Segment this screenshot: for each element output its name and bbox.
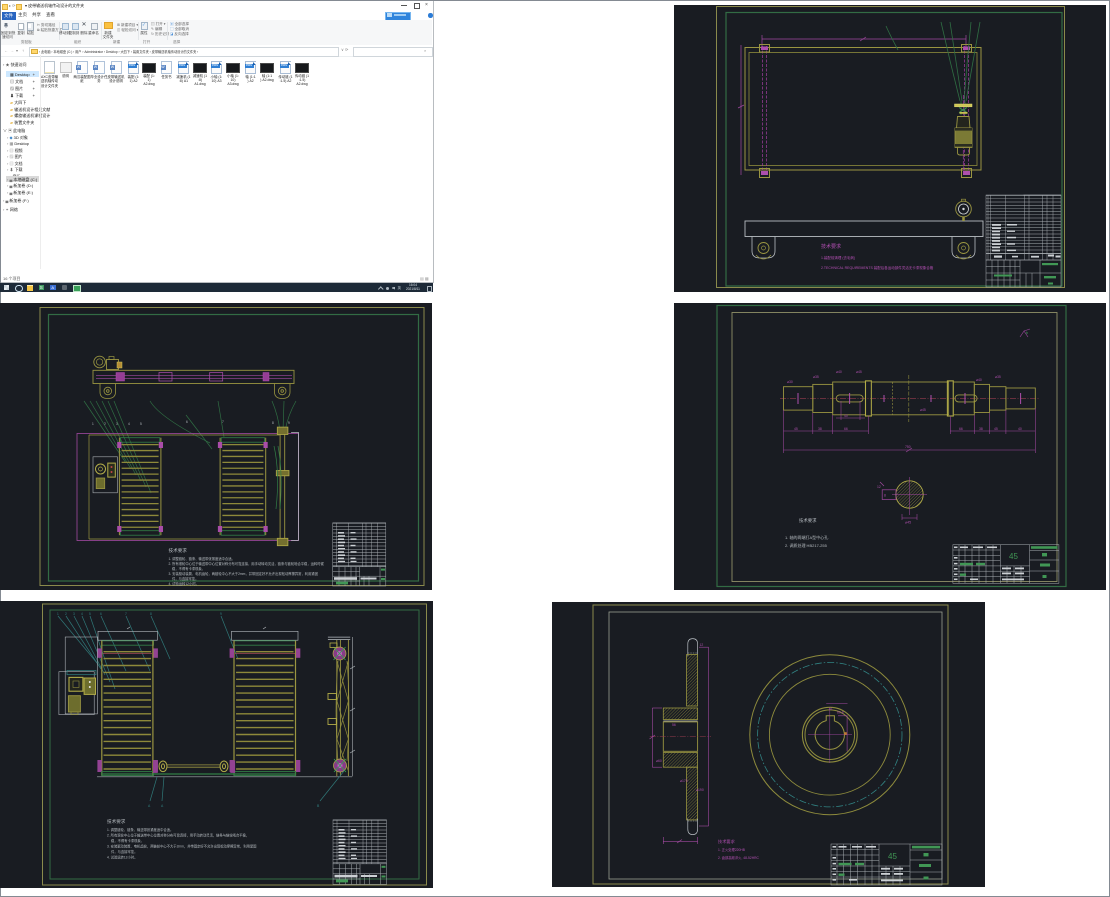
- svg-text:9: 9: [288, 421, 290, 425]
- svg-text:40: 40: [1018, 427, 1022, 431]
- svg-text:稳，不得有卡滞现象。: 稳，不得有卡滞现象。: [172, 566, 205, 571]
- svg-text:技术要求: 技术要求: [799, 517, 817, 524]
- svg-text:⌀30: ⌀30: [787, 380, 793, 384]
- svg-text:8: 8: [150, 612, 152, 616]
- svg-text:12: 12: [700, 643, 704, 647]
- svg-text:12: 12: [877, 485, 881, 489]
- svg-text:4: 4: [128, 422, 130, 426]
- svg-text:技术要求: 技术要求: [718, 838, 736, 845]
- svg-text:5: 5: [89, 612, 91, 616]
- svg-text:⌀60: ⌀60: [656, 759, 662, 763]
- svg-text:稳，不得有卡滞现象。: 稳，不得有卡滞现象。: [111, 838, 144, 843]
- svg-text:⌀170: ⌀170: [680, 779, 688, 783]
- svg-text:38: 38: [979, 427, 983, 431]
- svg-text:件，与连接牢靠。: 件，与连接牢靠。: [172, 576, 198, 581]
- svg-text:3. 安装驱动装置、电机齿轮，两链轮中心不大于2mm，并带固: 3. 安装驱动装置、电机齿轮，两链轮中心不大于2mm，并带固定好不允许出现松动摩…: [169, 571, 318, 576]
- svg-text:⌀45: ⌀45: [856, 370, 862, 374]
- svg-text:3. 安装驱动装置、电机齿轮，两链轮中心不大于2mm，并带固: 3. 安装驱动装置、电机齿轮，两链轮中心不大于2mm，并带固定好不允许出现松动摩…: [107, 844, 256, 849]
- svg-text:⌀35: ⌀35: [995, 375, 1001, 379]
- svg-text:技术要求: 技术要求: [107, 818, 126, 825]
- svg-text:5: 5: [140, 422, 142, 426]
- svg-text:B: B: [317, 804, 320, 808]
- svg-text:4. 试验运转12小时。: 4. 试验运转12小时。: [169, 581, 199, 586]
- svg-text:1. 调整链轮、链条、输送带张紧度适中合适。: 1. 调整链轮、链条、输送带张紧度适中合适。: [169, 556, 235, 561]
- svg-text:技术要求: 技术要求: [821, 243, 841, 250]
- svg-text:2: 2: [65, 612, 67, 616]
- svg-text:1. 正火处理220HB: 1. 正火处理220HB: [718, 847, 746, 852]
- svg-text:750: 750: [905, 445, 911, 449]
- svg-text:2. 调质处理 HB217-255: 2. 调质处理 HB217-255: [785, 542, 828, 548]
- svg-text:A: A: [148, 804, 151, 808]
- svg-text:⌀45: ⌀45: [905, 521, 911, 525]
- svg-text:45: 45: [794, 427, 798, 431]
- svg-text:38: 38: [818, 427, 822, 431]
- svg-text:2. 齿部高频淬火, 48-52HRC: 2. 齿部高频淬火, 48-52HRC: [718, 855, 759, 860]
- svg-text:2. 所有滚轮中心位于输送带中心位置对称分布可靠连接，用手动: 2. 所有滚轮中心位于输送带中心位置对称分布可靠连接，用手动转动灵活，链条与链轮…: [107, 833, 249, 838]
- svg-text:技术要求: 技术要求: [169, 547, 188, 554]
- svg-text:⌀35: ⌀35: [813, 375, 819, 379]
- svg-text:3: 3: [73, 612, 75, 616]
- svg-text:45: 45: [1009, 552, 1018, 561]
- svg-text:1: 1: [92, 422, 94, 426]
- svg-text:4. 试验运转12小时。: 4. 试验运转12小时。: [107, 855, 137, 860]
- svg-text:60.8: 60.8: [837, 711, 844, 715]
- svg-text:⌀45: ⌀45: [920, 408, 926, 412]
- svg-text:4: 4: [81, 612, 83, 616]
- svg-text:1: 1: [57, 612, 59, 616]
- svg-text:6: 6: [186, 420, 188, 424]
- svg-text:b: b: [1026, 330, 1029, 335]
- svg-text:1. 调整链轮、链条、输送带张紧度适中合适。: 1. 调整链轮、链条、输送带张紧度适中合适。: [107, 827, 173, 832]
- svg-text:2.TECHNICAL REQUIREMENTS 装配后各运: 2.TECHNICAL REQUIREMENTS 装配后各运动部件灵活无卡滞现象…: [821, 265, 934, 270]
- svg-text:1. 轴的两端打A型中心孔.: 1. 轴的两端打A型中心孔.: [785, 534, 829, 540]
- svg-text:7: 7: [222, 420, 224, 424]
- svg-text:45: 45: [888, 852, 897, 861]
- svg-text:8: 8: [272, 421, 274, 425]
- svg-text:9: 9: [220, 612, 222, 616]
- svg-text:件，与连接牢靠。: 件，与连接牢靠。: [111, 849, 137, 854]
- svg-text:16: 16: [829, 707, 833, 711]
- svg-text:8: 8: [884, 494, 886, 498]
- svg-text:66: 66: [959, 427, 963, 431]
- svg-text:A: A: [161, 804, 164, 808]
- svg-text:7: 7: [125, 612, 127, 616]
- svg-text:56: 56: [672, 723, 676, 727]
- svg-text:66: 66: [844, 427, 848, 431]
- svg-text:⌀190: ⌀190: [696, 788, 704, 792]
- svg-text:1.装配前清理 (去毛刺): 1.装配前清理 (去毛刺): [821, 255, 855, 260]
- svg-text:45: 45: [994, 427, 998, 431]
- svg-text:⌀40: ⌀40: [976, 378, 982, 382]
- svg-text:2. 所有滚轮中心位于输送带中心位置对称分布可靠连接，用手动: 2. 所有滚轮中心位于输送带中心位置对称分布可靠连接，用手动转动灵活，链条与链轮…: [169, 561, 325, 566]
- svg-text:40: 40: [844, 414, 848, 418]
- svg-text:6: 6: [100, 612, 102, 616]
- svg-text:⌀40: ⌀40: [836, 370, 842, 374]
